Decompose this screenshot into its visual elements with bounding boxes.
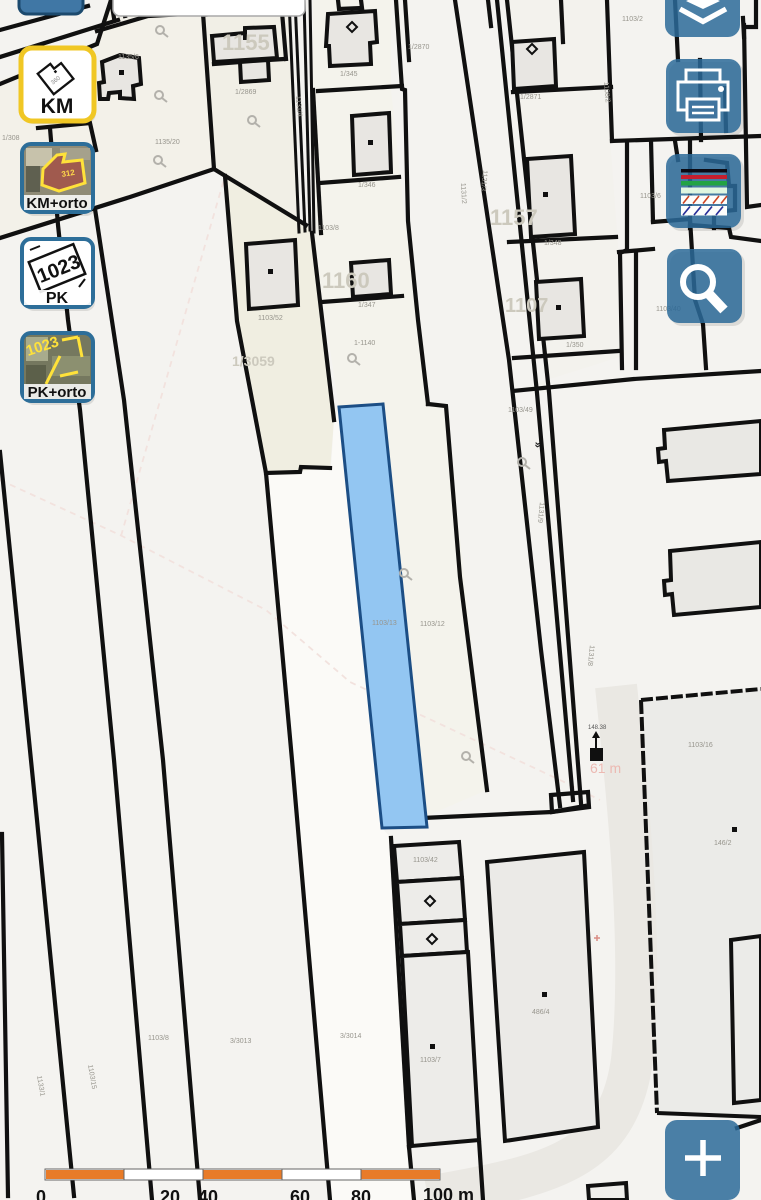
svg-text:40: 40 (198, 1187, 218, 1200)
svg-text:1157: 1157 (490, 205, 538, 230)
svg-text:1/308: 1/308 (2, 135, 20, 142)
svg-text:1135/20: 1135/20 (155, 139, 180, 146)
svg-text:1/2870: 1/2870 (408, 44, 430, 51)
svg-text:20: 20 (160, 1187, 180, 1200)
svg-text:3/3014: 3/3014 (340, 1033, 362, 1040)
svg-text:1103/8: 1103/8 (318, 225, 339, 232)
svg-text:»: » (531, 441, 544, 448)
svg-text:3/3013: 3/3013 (230, 1038, 252, 1045)
svg-text:1/2871: 1/2871 (520, 94, 542, 101)
svg-text:1103/49: 1103/49 (508, 407, 533, 414)
svg-text:1103/52: 1103/52 (258, 315, 283, 322)
svg-text:1103/2: 1103/2 (622, 16, 643, 23)
svg-text:100 m: 100 m (423, 1185, 474, 1200)
svg-text:60: 60 (290, 1187, 310, 1200)
svg-text:1/2869: 1/2869 (235, 89, 257, 96)
svg-text:0: 0 (36, 1187, 46, 1200)
svg-text:1/345: 1/345 (340, 71, 358, 78)
svg-text:1103/6: 1103/6 (640, 193, 661, 200)
svg-text:1103/16: 1103/16 (688, 742, 713, 749)
svg-text:1103/13: 1103/13 (372, 620, 397, 627)
svg-text:1-1140: 1-1140 (354, 340, 375, 347)
svg-text:1103/12: 1103/12 (420, 621, 445, 628)
svg-text:1/3059: 1/3059 (232, 353, 275, 369)
svg-text:1107: 1107 (505, 295, 548, 317)
svg-text:1/346: 1/346 (358, 182, 376, 189)
svg-text:1135/6: 1135/6 (118, 54, 139, 61)
svg-text:1103/7: 1103/7 (420, 1057, 441, 1064)
svg-text:1103/8: 1103/8 (148, 1035, 169, 1042)
svg-text:1160: 1160 (322, 268, 370, 293)
svg-text:80: 80 (351, 1187, 371, 1200)
svg-text:61 m: 61 m (590, 760, 621, 776)
svg-text:KM+orto: KM+orto (26, 195, 87, 212)
svg-text:146/2: 146/2 (714, 840, 732, 847)
svg-text:1/347: 1/347 (358, 302, 376, 309)
svg-text:148.38: 148.38 (588, 725, 607, 731)
svg-text:KM: KM (41, 95, 74, 118)
svg-text:PK: PK (46, 290, 69, 307)
svg-text:1103/42: 1103/42 (413, 857, 438, 864)
svg-text:486/4: 486/4 (532, 1009, 550, 1016)
svg-text:1/350: 1/350 (566, 342, 584, 349)
svg-text:1131/2: 1131/2 (459, 183, 467, 204)
svg-text:1155: 1155 (222, 30, 270, 55)
svg-text:PK+orto: PK+orto (28, 384, 87, 401)
svg-text:1/348: 1/348 (544, 240, 562, 247)
